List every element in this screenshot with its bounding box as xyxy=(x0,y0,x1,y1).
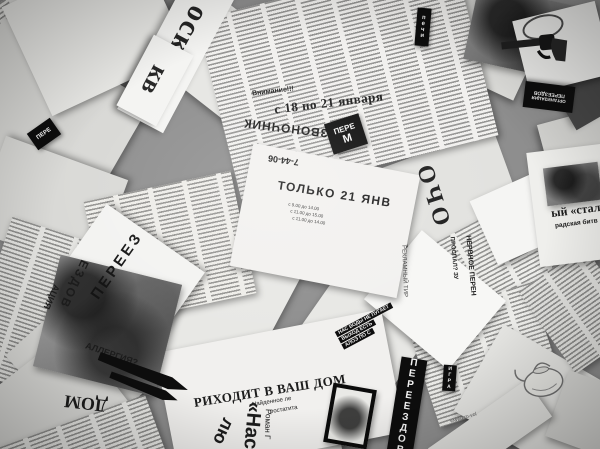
nas-quote-vertical: «Нас xyxy=(239,401,264,449)
photo-fragment-stal xyxy=(543,162,600,206)
igra-box: ИГРА xyxy=(442,365,457,392)
photo-collage: осква кв Внимание!!! с 18 по 21 января П… xyxy=(0,0,600,449)
masthead-text-2: кв xyxy=(135,61,175,101)
black-box-org-pereezdov: ОРГАНИЗАЦИЯ ПЕРЕЕЗДОВ xyxy=(523,81,576,113)
framed-ad-image xyxy=(323,383,377,449)
igra-text: ИГРА xyxy=(446,366,454,390)
dom-upside-down: ДОМ xyxy=(63,391,108,415)
roman-vertical: Роман Г xyxy=(262,409,271,440)
pechi-text: печи xyxy=(419,15,427,39)
revolver-photo xyxy=(498,24,574,73)
black-box-m-text: М xyxy=(341,131,353,145)
black-box-pere-left-text: ПЕРЕ xyxy=(36,127,53,141)
